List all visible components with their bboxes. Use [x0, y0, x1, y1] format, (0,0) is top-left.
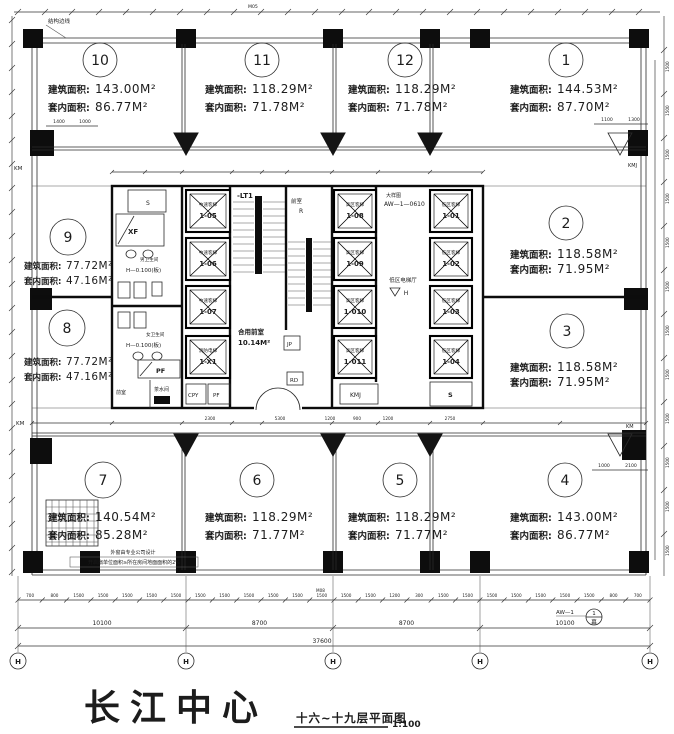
net-label: 套内面积:	[204, 102, 247, 114]
room-xf-label: XF	[128, 228, 138, 236]
bottom-tick-value: 1500	[122, 593, 133, 598]
right-dim-value: 1500	[665, 193, 670, 204]
net-label: 套内面积:	[24, 276, 61, 287]
unit-number: 5	[396, 473, 405, 489]
unit-number: 1	[562, 53, 571, 69]
unit-9: 9 建筑面积: 77.72M² 套内面积: 47.16M²	[23, 219, 113, 287]
right-dim-value: 1500	[665, 413, 670, 424]
net-value: 47.16M²	[66, 371, 113, 383]
bank-right: 低区客梯1-01低区客梯1-02低区客梯1-03低区客梯1-04	[430, 190, 472, 378]
bottom-tick-value: 1500	[244, 593, 255, 598]
structure-edge-note: 结构边线	[48, 17, 71, 25]
grid-bubble-label: H	[647, 658, 653, 666]
gross-value: 143.00M²	[557, 510, 618, 524]
net-value: 86.77M²	[557, 528, 610, 542]
right-dim-value: 1500	[665, 281, 670, 292]
entry-door-mark	[418, 133, 442, 155]
bottom-tick-value: 1500	[98, 593, 109, 598]
net-value: 47.16M²	[66, 275, 113, 287]
floor-plan-sheet: 1500150015001500150015001500150015001500…	[0, 0, 674, 734]
right-dim-value: 1500	[665, 61, 670, 72]
bottom-tick-value: 700	[634, 593, 642, 598]
elevator-id: 1-07	[199, 308, 217, 316]
right-dim-value: 1500	[665, 237, 670, 248]
net-label: 套内面积:	[347, 530, 390, 542]
bottom-tick-value: 1500	[535, 593, 546, 598]
entry-door-mark	[174, 133, 198, 155]
elevator-type-label: 高区客梯	[346, 201, 365, 208]
elevator-id: 1-03	[442, 308, 460, 316]
gross-label: 建筑面积:	[47, 84, 90, 96]
door-km-left-mid	[30, 438, 52, 464]
door-tag-top: M05	[248, 4, 258, 10]
window-note-1: 外窗由专业公司设计	[110, 549, 155, 556]
grid-bubble-label: H	[330, 658, 336, 666]
small-dim-value: 1000	[79, 119, 91, 125]
small-dim-value: 900	[353, 416, 361, 421]
gross-value: 144.53M²	[557, 82, 618, 96]
elevator-id: 1-02	[442, 260, 460, 268]
column	[176, 29, 196, 48]
bottom-tick-value: 1500	[584, 593, 595, 598]
elevator-id: 1-011	[344, 358, 367, 366]
small-dim-value: 2750	[445, 416, 456, 421]
small-dim-value: 2100	[625, 463, 637, 469]
elevator-type-label: 中速客梯	[199, 249, 218, 256]
bottom-tick-value: 1500	[292, 593, 303, 598]
column	[629, 551, 649, 573]
span-dim-value: 10100	[92, 620, 111, 627]
gross-value: 118.29M²	[395, 510, 456, 524]
right-dim-value: 1500	[665, 325, 670, 336]
column	[23, 551, 43, 573]
womens-toilet-label: 女卫生间	[146, 331, 165, 338]
net-label: 套内面积:	[509, 530, 552, 542]
mens-level: H—0.100(板)	[126, 266, 161, 274]
drawing-scale: 1:100	[392, 720, 421, 730]
column	[470, 29, 490, 48]
unit-number: 9	[64, 230, 73, 246]
bottom-tick-value: 1500	[171, 593, 182, 598]
elevator-id: 1-06	[199, 260, 217, 268]
shaft-cpy-label: CPY	[188, 393, 199, 399]
km-label-left-mid: KM	[16, 421, 25, 427]
bottom-tick-value: 1500	[341, 593, 352, 598]
right-dim-value: 1500	[665, 105, 670, 116]
unit-number: 11	[253, 53, 271, 69]
unit-6: 6 建筑面积: 118.29M² 套内面积: 71.77M²	[204, 463, 313, 542]
unit-number: 4	[561, 473, 570, 489]
door-km-left-top	[30, 130, 54, 156]
shaft-rd-label: RD	[290, 378, 298, 384]
gross-value: 77.72M²	[66, 356, 113, 368]
unit-number: 12	[396, 53, 414, 69]
elevator-type-label: 中速客梯	[199, 297, 218, 304]
bottom-tick-value: 1500	[268, 593, 279, 598]
net-value: 71.95M²	[557, 375, 610, 389]
elevator-type-label: 低区客梯	[442, 201, 461, 208]
shared-front-area: 10.14M²	[238, 339, 270, 347]
dimension-rows: 7008001500150015001500150015001500150015…	[15, 593, 653, 649]
gross-value: 118.58M²	[557, 247, 618, 261]
bank-left: 中速客梯1-05中速客梯1-06中速客梯1-07消防电梯1-X1	[186, 190, 230, 378]
net-label: 套内面积:	[47, 102, 90, 114]
shaft-s-label: S	[448, 391, 453, 399]
unit-number: 6	[253, 473, 262, 489]
unit-11: 11 建筑面积: 118.29M² 套内面积: 71.78M²	[204, 43, 313, 114]
tea-room-label: 茶水间	[154, 386, 169, 393]
km-label-right-mid: KM	[626, 424, 634, 430]
gross-label: 建筑面积:	[347, 512, 390, 524]
span-dim-value: 8700	[252, 620, 267, 627]
unit-10: 10 建筑面积: 143.00M² 套内面积: 86.77M²	[47, 43, 156, 114]
gross-label: 建筑面积:	[347, 84, 390, 96]
grid-bubble-label: H	[183, 658, 189, 666]
room-pf-label: PF	[156, 367, 165, 375]
right-dim-value: 1500	[665, 545, 670, 556]
front-room-mark: R	[299, 208, 303, 215]
bottom-tick-value: 1500	[438, 593, 449, 598]
gross-value: 118.29M²	[252, 510, 313, 524]
bottom-tick-value: 1500	[462, 593, 473, 598]
net-label: 套内面积:	[347, 102, 390, 114]
net-label: 套内面积:	[509, 102, 552, 114]
net-value: 87.70M²	[557, 100, 610, 114]
curtain-ref: AW—1	[556, 610, 574, 616]
right-dim-value: 1500	[665, 457, 670, 468]
unit-3: 3 建筑面积: 118.58M² 套内面积: 71.95M²	[509, 314, 618, 389]
entry-door-mark	[418, 434, 442, 456]
entry-door-mark	[321, 434, 345, 456]
gross-value: 118.29M²	[395, 82, 456, 96]
gross-value: 118.29M²	[252, 82, 313, 96]
elevator-id: 1-04	[442, 358, 460, 366]
elevator-id: 1-09	[346, 260, 364, 268]
shaft-kmj-label: KMJ	[350, 392, 361, 399]
small-dim-value: 1100	[601, 117, 613, 123]
gross-label: 建筑面积:	[204, 84, 247, 96]
net-value: 71.77M²	[395, 528, 448, 542]
unit-2: 2 建筑面积: 118.58M² 套内面积: 71.95M²	[509, 206, 618, 276]
gross-label: 建筑面积:	[204, 512, 247, 524]
unit-5: 5 建筑面积: 118.29M² 套内面积: 71.77M²	[347, 463, 456, 542]
elevator-type-label: 低区客梯	[442, 249, 461, 256]
bottom-tick-value: 1500	[317, 593, 328, 598]
right-dim-value: 1500	[665, 501, 670, 512]
column	[470, 551, 490, 573]
column	[629, 29, 649, 48]
unit-8: 8 建筑面积: 77.72M² 套内面积: 47.16M²	[23, 310, 113, 383]
curtain-bubble-top: 1	[592, 611, 596, 617]
km-label-left-top: KM	[14, 166, 23, 172]
bottom-tick-value: 1500	[219, 593, 230, 598]
drawing-title: 十六~十九层平面图	[296, 711, 407, 725]
net-value: 71.77M²	[252, 528, 305, 542]
gross-value: 118.58M²	[557, 360, 618, 374]
window-note-2: 开启扇单位面积≥所在房间地面面积的2%	[88, 559, 180, 566]
gross-value: 143.00M²	[95, 82, 156, 96]
project-name: 长江中心	[84, 688, 268, 729]
gross-label: 建筑面积:	[509, 512, 552, 524]
unit-4: 4 建筑面积: 143.00M² 套内面积: 86.77M²	[509, 463, 618, 542]
net-label: 套内面积:	[509, 377, 552, 389]
front-small-label: 前室	[116, 389, 126, 396]
kmj-label-right: KMJ	[628, 163, 637, 169]
net-label: 套内面积:	[24, 372, 61, 383]
elevator-id: 1-X1	[199, 358, 217, 366]
span-dim-value: 8700	[399, 620, 414, 627]
bottom-tick-value: 800	[610, 593, 618, 598]
small-dim-value: 5300	[275, 416, 286, 421]
unit-1: 1 建筑面积: 144.53M² 套内面积: 87.70M²	[509, 43, 618, 114]
elevator-type-label: 低区客梯	[442, 347, 461, 354]
net-label: 套内面积:	[47, 530, 90, 542]
shaft-jp-label: JP	[286, 342, 293, 348]
bottom-tick-value: 800	[50, 593, 58, 598]
shared-front-label: 合用前室	[237, 327, 265, 336]
elevator-id: 1-01	[442, 212, 460, 220]
elevator-type-label: 高区客梯	[346, 297, 365, 304]
door-kmj-right	[628, 130, 648, 156]
unit-number: 7	[99, 473, 108, 489]
entry-door-mark	[321, 133, 345, 155]
right-dim-value: 1500	[665, 149, 670, 160]
plan-svg: 1500150015001500150015001500150015001500…	[0, 0, 674, 734]
bottom-tick-value: 700	[26, 593, 34, 598]
unit-number: 2	[562, 216, 571, 232]
bottom-tick-value: 1500	[146, 593, 157, 598]
front-room-label: 前室	[291, 197, 303, 205]
elevator-id: 1-05	[199, 212, 217, 220]
gross-label: 建筑面积:	[509, 249, 552, 261]
gross-label: 建筑面积:	[509, 362, 552, 374]
gross-value: 77.72M²	[66, 260, 113, 272]
bank-mid: 高区客梯1-08高区客梯1-09高区客梯1-010高区客梯1-011	[334, 190, 376, 378]
toilet-block: S XF 男卫生间 H—0.100(板) 女卫生间 H—0.100(板) PF …	[116, 190, 180, 408]
gross-label: 建筑面积:	[23, 261, 61, 272]
stair-lt1: -LT1	[233, 192, 285, 274]
span-dim-value: 10100	[555, 620, 574, 627]
small-dim-value: 1400	[53, 119, 65, 125]
right-dim-value: 1500	[665, 369, 670, 380]
gross-label: 建筑面积:	[23, 357, 61, 368]
total-dim-value: 37600	[312, 638, 331, 645]
entry-door-mark	[174, 434, 198, 456]
elevator-type-label: 低区客梯	[442, 297, 461, 304]
net-value: 71.95M²	[557, 262, 610, 276]
elevator-type-label: 高区客梯	[346, 249, 365, 256]
womens-level: H—0.100(板)	[126, 341, 161, 349]
bottom-tick-value: 1500	[365, 593, 376, 598]
gross-value: 140.54M²	[95, 510, 156, 524]
gross-label: 建筑面积:	[509, 84, 552, 96]
elevator-type-label: 中速客梯	[199, 201, 218, 208]
hall-label: 低区电梯厅	[389, 276, 417, 284]
bottom-tick-value: 1500	[195, 593, 206, 598]
bottom-tick-value: 1500	[487, 593, 498, 598]
elevator-id: 1-08	[346, 212, 364, 220]
core: -LT1 前室 R 大样图 AW—1—0610 S XF 男卫生间 H—0.10…	[112, 186, 483, 411]
title-block: 长江中心 十六~十九层平面图 1:100	[84, 688, 421, 730]
gross-label: 建筑面积:	[47, 512, 90, 524]
net-value: 85.28M²	[95, 528, 148, 542]
stair-lt1-label: -LT1	[237, 192, 253, 200]
bottom-tick-value: 300	[415, 593, 423, 598]
grid-bubble-label: H	[477, 658, 483, 666]
elevator-id: 1-010	[344, 308, 367, 316]
elevator-type-label: 高区客梯	[346, 347, 365, 354]
hall-mark: H	[404, 290, 409, 297]
unit-12: 12 建筑面积: 118.29M² 套内面积: 71.78M²	[347, 43, 456, 114]
unit-number: 8	[63, 321, 72, 337]
grid-bubble-label: H	[15, 658, 21, 666]
detail-note: 大样图	[386, 192, 401, 199]
small-dim-value: 1300	[628, 117, 640, 123]
net-value: 86.77M²	[95, 100, 148, 114]
small-dim-value: 2300	[205, 416, 216, 421]
small-dim-value: 1200	[325, 416, 336, 421]
curtain-bubble-bottom: 幕	[591, 618, 597, 626]
small-dim-value: 1200	[383, 416, 394, 421]
shaft-pf-label: PF	[213, 393, 219, 399]
stair-2	[288, 238, 331, 312]
bottom-tick-value: 1200	[389, 593, 400, 598]
bottom-tick-value: 1500	[511, 593, 522, 598]
unit-7: 7 建筑面积: 140.54M² 套内面积: 85.28M² 外窗由专业公司设计…	[47, 462, 198, 567]
net-label: 套内面积:	[204, 530, 247, 542]
room-s-label: S	[146, 200, 150, 207]
small-dim-value: 1000	[598, 463, 610, 469]
bottom-tick-value: 1500	[73, 593, 84, 598]
detail-ref: AW—1—0610	[384, 201, 425, 208]
elevator-type-label: 消防电梯	[199, 347, 218, 354]
unit-number: 3	[563, 324, 572, 340]
column	[23, 29, 43, 48]
mens-toilet-label: 男卫生间	[140, 256, 159, 263]
net-value: 71.78M²	[252, 100, 305, 114]
net-label: 套内面积:	[509, 264, 552, 276]
unit-number: 10	[91, 53, 109, 69]
bottom-tick-value: 1500	[560, 593, 571, 598]
net-value: 71.78M²	[395, 100, 448, 114]
